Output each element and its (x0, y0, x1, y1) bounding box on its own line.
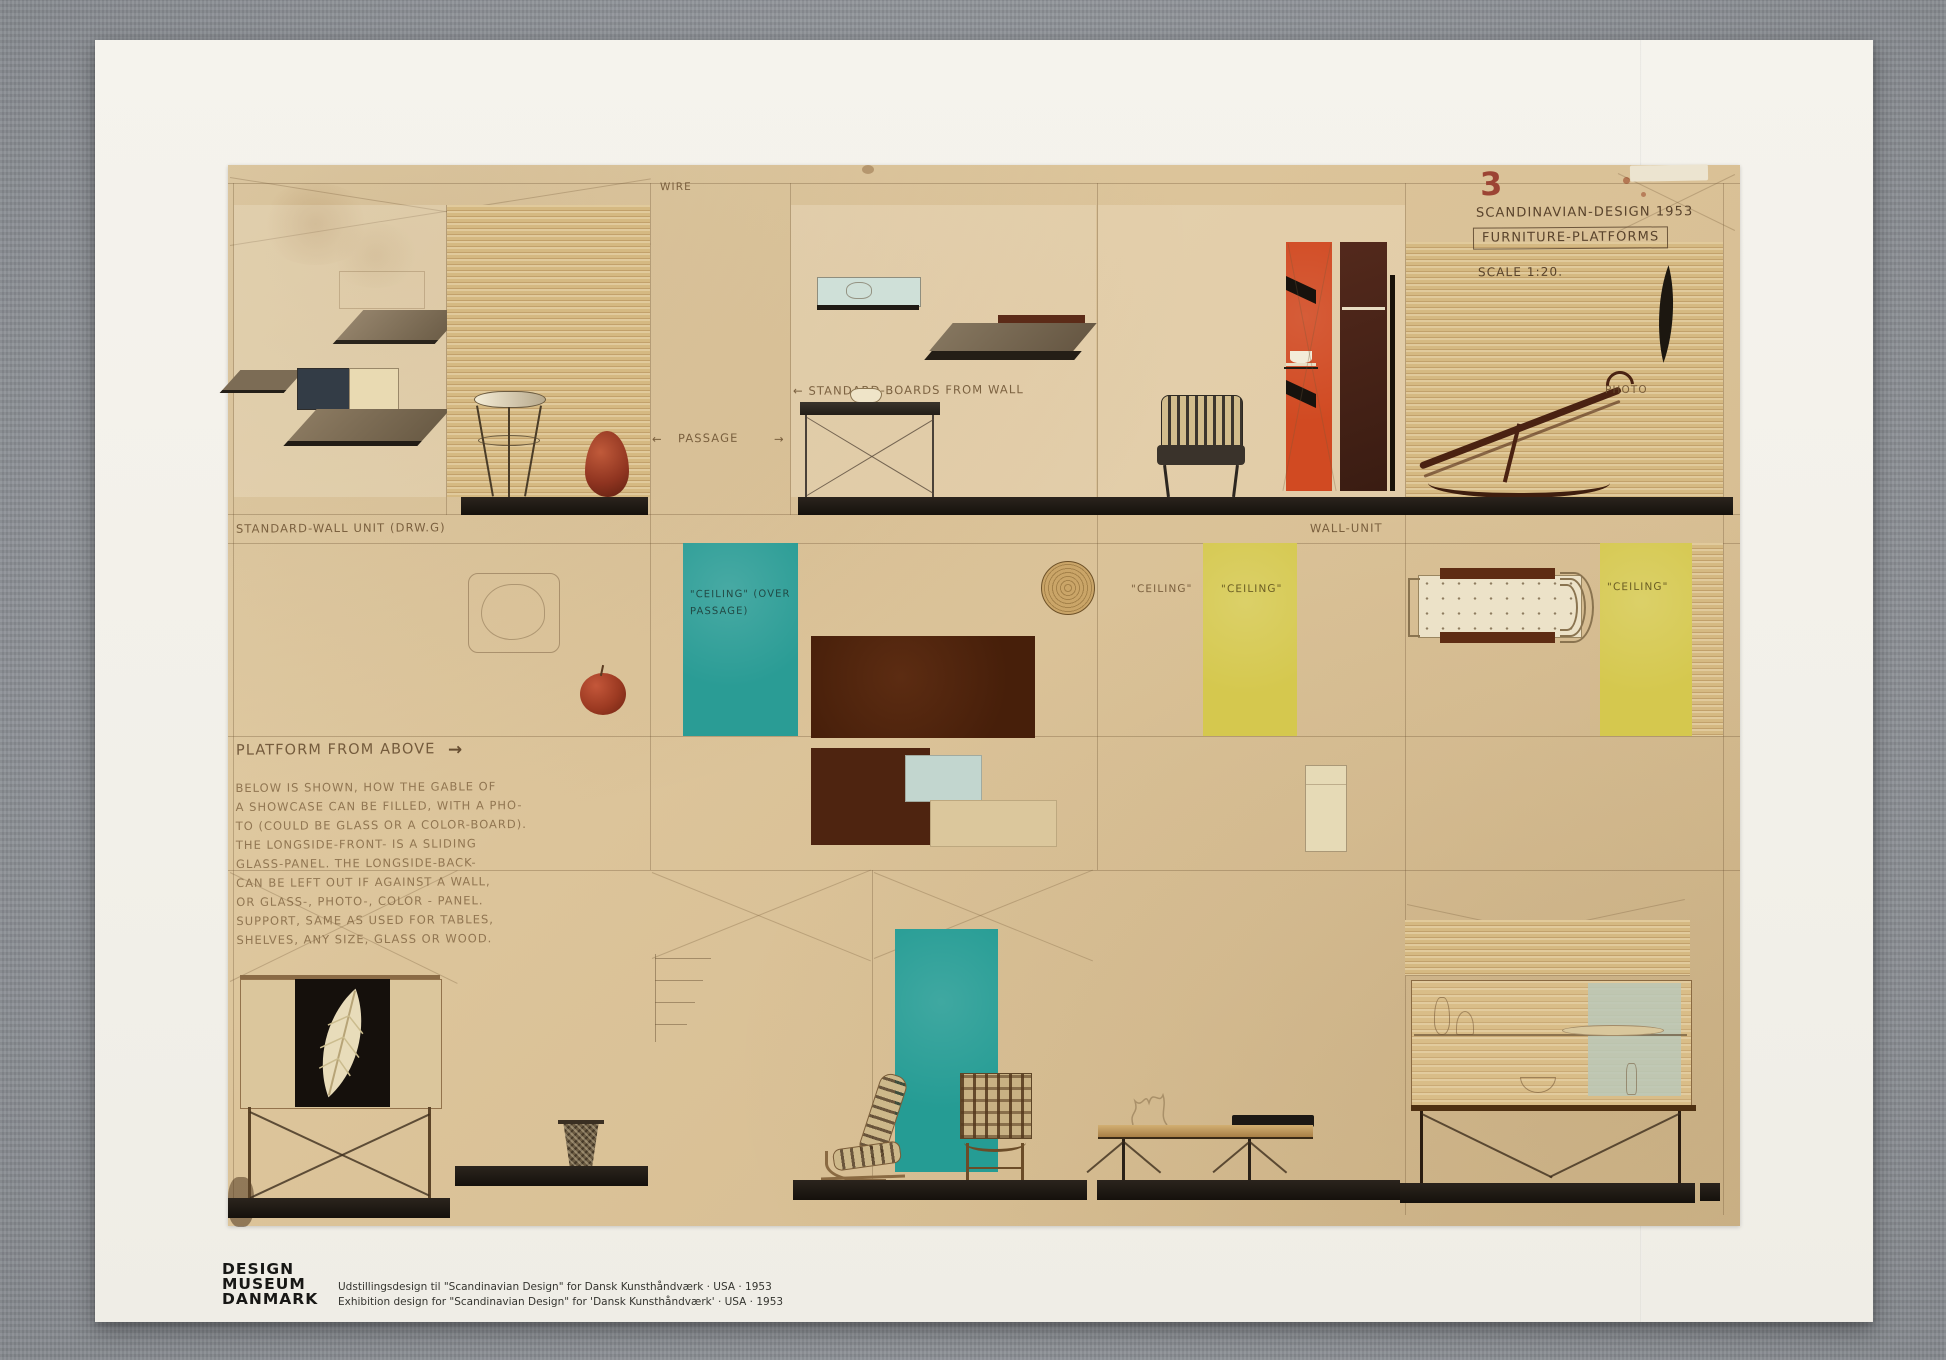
platform (1409, 497, 1733, 515)
platform (228, 1198, 450, 1218)
rocking-chaise (1418, 365, 1630, 500)
striped-armchair (1155, 395, 1247, 497)
armchair-leg (1232, 465, 1239, 497)
wall-cabinet-cream-door (349, 368, 399, 410)
poster-sheet: WIRE ← PASSAGE → ← STANDARD-BOARDS FROM … (95, 40, 1873, 1322)
plate-number: 3 (1479, 165, 1503, 204)
pencil-line (655, 1002, 695, 1003)
armchair-leg (1163, 465, 1170, 497)
yellow-ceiling-panel (1600, 543, 1692, 736)
showcase-cabinet (1411, 980, 1692, 1109)
passage-arrow-left: ← (652, 432, 663, 446)
stool-seat (474, 391, 546, 408)
shelf-shadow (924, 351, 1082, 360)
desk-leg (805, 415, 807, 497)
vase-sketch (1434, 997, 1450, 1035)
rattan-ball-plan (1041, 561, 1095, 615)
paper-stain (862, 165, 874, 174)
wall-unit-label: WALL-UNIT (1310, 521, 1383, 536)
wood-strip (1692, 543, 1723, 736)
platform-from-above-label: PLATFORM FROM ABOVE (236, 741, 436, 758)
bench-brace (1124, 1141, 1162, 1173)
paper-stain (1623, 177, 1630, 184)
note-line: A SHOWCASE CAN BE FILLED, WITH A PHO- (236, 796, 527, 817)
caption-line: Exhibition design for "Scandinavian Desi… (338, 1295, 783, 1310)
passage-label: PASSAGE (678, 431, 739, 445)
bowl-sketch-2 (1520, 1077, 1556, 1093)
cushion-plan (481, 584, 545, 640)
standard-wall-unit-label: STANDARD-WALL UNIT (DRW.G) (236, 520, 446, 535)
pencil-line (655, 958, 711, 959)
note-line: BELOW IS SHOWN, HOW THE GABLE OF (235, 777, 526, 798)
logo-line: DANMARK (222, 1292, 318, 1307)
showcase-brace (1549, 1113, 1680, 1178)
ceiling-label-mid: "CEILING" (1131, 583, 1193, 595)
handwritten-note: BELOW IS SHOWN, HOW THE GABLE OF A SHOWC… (235, 777, 527, 950)
bottle-sketch (1626, 1063, 1637, 1095)
platform (798, 497, 1097, 515)
pencil-line (228, 543, 1740, 544)
bench-leg (1122, 1139, 1125, 1181)
platform (1400, 1183, 1695, 1203)
wire-label: WIRE (660, 181, 692, 193)
daybed-foot-bracket (1408, 578, 1420, 637)
bench-daybed (1098, 1115, 1320, 1181)
cabinet-leg (248, 1107, 251, 1199)
brown-rug-plan (811, 636, 1035, 738)
note-line: SHELVES, ANY SIZE, GLASS OR WOOD. (236, 929, 527, 950)
basket-rim (558, 1120, 604, 1124)
armchair-back (1161, 395, 1243, 451)
pencil-line (1306, 784, 1346, 785)
cabinet-brace (250, 1113, 430, 1198)
wood-band (1405, 920, 1690, 976)
chaise-seat-rail (1419, 386, 1622, 470)
wall-unit-pole (1390, 275, 1395, 491)
teal-ceiling-panel (683, 543, 798, 736)
note-line: CAN BE LEFT OUT IF AGAINST A WALL, (236, 872, 527, 893)
desk-leg (932, 415, 934, 497)
pencil-line (650, 183, 651, 870)
poster-caption: Udstillingsdesign til "Scandinavian Desi… (338, 1280, 783, 1310)
small-cabinet-plan (1305, 765, 1347, 852)
stool-leg (508, 407, 510, 497)
caption-line: Udstillingsdesign til "Scandinavian Desi… (338, 1280, 783, 1295)
wall-cabinet-navy-door (297, 368, 352, 410)
photo-label: PHOTO (1605, 384, 1648, 396)
drawing-paper: WIRE ← PASSAGE → ← STANDARD-BOARDS FROM … (228, 165, 1740, 1226)
note-line: OR GLASS-, PHOTO-, COLOR - PANEL. (236, 891, 527, 912)
note-line: SUPPORT, SAME AS USED FOR TABLES, (236, 910, 527, 931)
bowl-sketch (850, 388, 882, 403)
pale-blue-panel-plan (905, 755, 982, 802)
bench-brace (1087, 1141, 1125, 1173)
cream-panel-plan (930, 800, 1057, 847)
three-leg-stool (474, 383, 544, 497)
platform (455, 1166, 648, 1186)
woven-back (960, 1073, 1032, 1139)
paper-stain (1641, 192, 1646, 197)
standard-boards-label: ← STANDARD-BOARDS FROM WALL (793, 382, 1024, 398)
museum-logo: DESIGN MUSEUM DANMARK (222, 1262, 318, 1307)
daybed-mattress (1418, 575, 1582, 638)
chair-stretcher (966, 1167, 1024, 1169)
daybed-plan (1408, 568, 1600, 643)
ceiling-label-yellow2: "CEILING" (1607, 581, 1669, 593)
chaise-seat-rail2 (1423, 400, 1620, 478)
armchair-seat (1157, 445, 1245, 465)
showcase-base-rail (1411, 1105, 1696, 1111)
x-brace-line (652, 870, 871, 959)
platform (461, 497, 648, 515)
stool-leg (476, 406, 494, 497)
pencil-line (655, 954, 656, 1042)
floating-shelf (929, 323, 1096, 351)
cabinet-leg (428, 1107, 431, 1199)
bench-slab (1098, 1125, 1313, 1139)
daybed-rail (1440, 568, 1555, 579)
showcase-leg (1678, 1111, 1681, 1183)
note-line: GLASS-PANEL. THE LONGSIDE-BACK- (236, 853, 527, 874)
desk-top (800, 402, 940, 415)
note-line: THE LONGSIDE-FRONT- IS A SLIDING (236, 834, 527, 855)
stool-leg (524, 406, 542, 497)
platform (1097, 497, 1409, 515)
showcase-brace (1422, 1113, 1553, 1178)
bench-leg (1248, 1139, 1251, 1181)
paper-tape-patch (1630, 164, 1708, 181)
note-line: TO (COULD BE GLASS OR A COLOR-BOARD). (236, 815, 527, 836)
teapot-sketch (846, 282, 872, 299)
drawing-title-line1: SCANDINAVIAN-DESIGN 1953 (1476, 204, 1693, 221)
fish-dish-sketch (1562, 1025, 1664, 1036)
x-brace-line (652, 872, 871, 961)
chair-leg (1021, 1143, 1024, 1183)
goblet-sketch (1456, 1011, 1474, 1035)
stool-plan-outline (468, 573, 560, 653)
red-apple-plan (580, 673, 626, 715)
chaise-rocker (1428, 471, 1610, 498)
wall-unit-white-shelf (1342, 307, 1385, 310)
woven-seat-sag (964, 1133, 1026, 1152)
wall-panel (234, 205, 446, 497)
wall-unit-brown-panel (1340, 242, 1387, 491)
bench-brace (1250, 1141, 1288, 1173)
pencil-line (228, 183, 1740, 184)
ceiling-label-yellow1: "CEILING" (1221, 583, 1283, 595)
chair-leg (966, 1143, 969, 1183)
yellow-ceiling-panel (1203, 543, 1297, 736)
platform-from-above-arrow: → (448, 740, 463, 760)
pencil-line (655, 1024, 687, 1025)
photo-leaf (1649, 264, 1682, 363)
daybed-rail (1440, 632, 1555, 643)
drawing-title-line2: FURNITURE-PLATFORMS (1473, 226, 1668, 249)
webbed-lounge-chair (817, 1073, 917, 1181)
leaf-cabinet (240, 975, 440, 1220)
display-box-shadow (817, 305, 919, 310)
bench-brace (1213, 1141, 1251, 1173)
pencil-line (1723, 183, 1724, 1215)
wire-basket (561, 1123, 601, 1167)
step-shelf-sketch (655, 954, 713, 1042)
showcase-leg (1420, 1111, 1423, 1183)
teal-panel-label-line1: "CEILING" (OVER (690, 589, 791, 601)
photo-backdrop: WIRE ← PASSAGE → ← STANDARD-BOARDS FROM … (0, 0, 1946, 1360)
platform (1097, 1180, 1400, 1200)
pencil-line (655, 980, 703, 981)
woven-armchair (960, 1073, 1030, 1183)
wall-niche-outline (339, 271, 425, 309)
teal-panel-label-line2: PASSAGE) (690, 606, 749, 617)
drawing-scale: SCALE 1:20. (1478, 265, 1563, 280)
platform (1700, 1183, 1720, 1201)
platform (793, 1180, 1087, 1200)
passage-arrow-right: → (774, 432, 785, 446)
